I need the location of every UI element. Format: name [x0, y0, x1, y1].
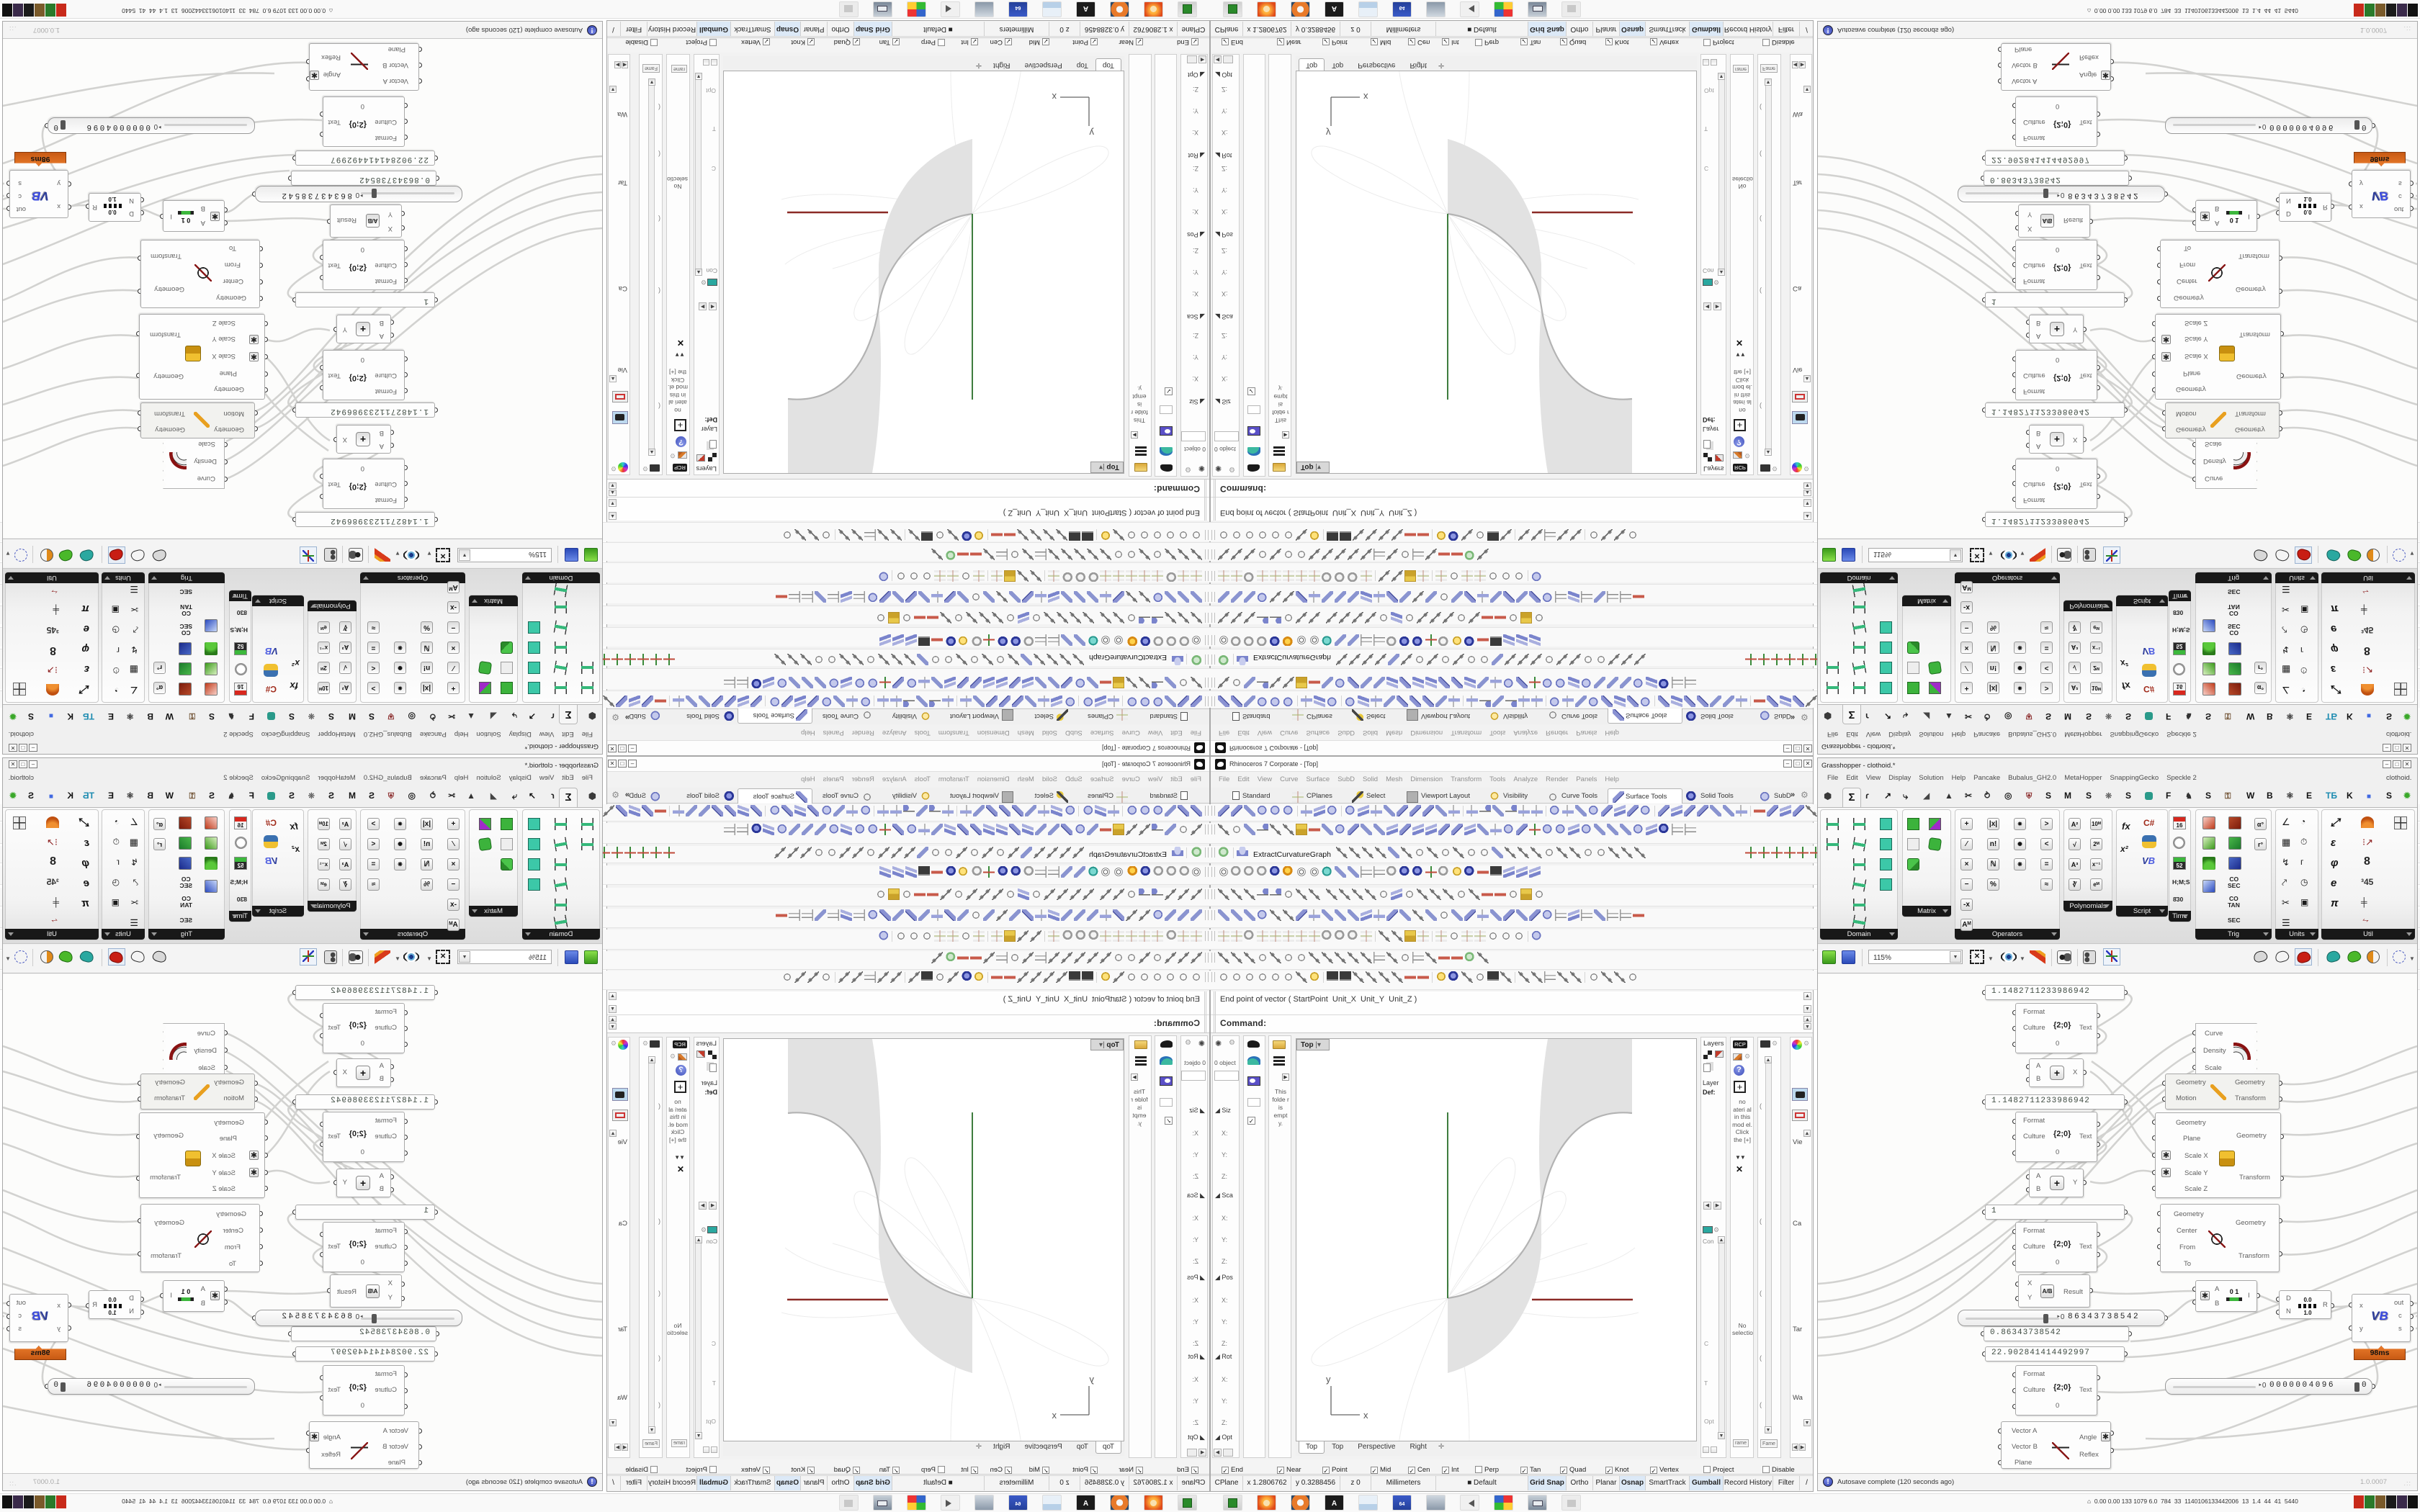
svg-text:y: y	[1326, 127, 1331, 138]
svg-text:y: y	[1326, 1374, 1331, 1385]
svg-text:x: x	[1363, 91, 1368, 102]
svg-text:y: y	[1089, 127, 1094, 138]
svg-text:y: y	[1089, 1374, 1094, 1385]
svg-text:x: x	[1363, 1410, 1368, 1421]
svg-text:x: x	[1052, 1410, 1057, 1421]
svg-text:x: x	[1052, 91, 1057, 102]
